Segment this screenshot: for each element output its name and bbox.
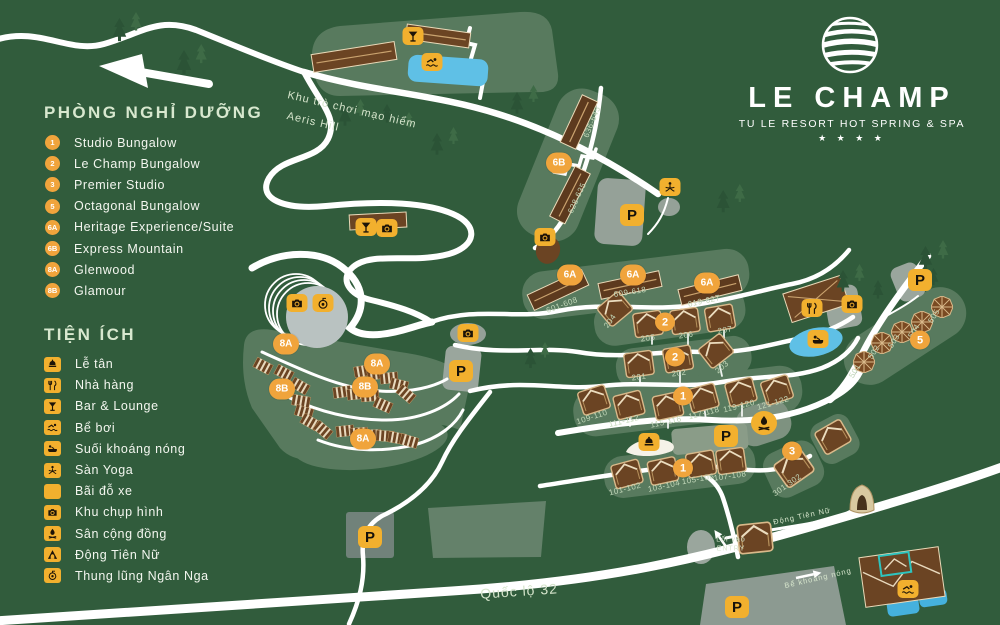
room-marker-8B[interactable]: 8B	[352, 377, 378, 398]
room-badge: 6A	[45, 220, 60, 235]
room-marker-6A[interactable]: 6A	[694, 273, 720, 294]
community-icon	[756, 415, 772, 431]
reception-icon	[44, 357, 61, 372]
rooms-legend-list: 1Studio Bungalow2Le Champ Bungalow3Premi…	[42, 132, 292, 302]
parking-marker[interactable]: P	[908, 269, 932, 291]
legend-facility-1: Nhà hàng	[42, 375, 292, 396]
facility-label: Suối khoáng nóng	[75, 442, 185, 456]
photo-icon	[44, 505, 61, 520]
legend-room-8B: 8BGlamour	[42, 280, 292, 301]
legend-panel: PHÒNG NGHỈ DƯỠNG 1Studio Bungalow2Le Cha…	[42, 103, 292, 587]
cave-icon	[44, 547, 61, 562]
legend-room-6B: 6BExpress Mountain	[42, 238, 292, 259]
room-label: Glamour	[74, 284, 126, 298]
legend-facility-10: Thung lũng Ngân Nga	[42, 565, 292, 586]
legend-room-2: 2Le Champ Bungalow	[42, 153, 292, 174]
parking-marker[interactable]: P	[620, 204, 644, 226]
room-marker-6A[interactable]: 6A	[557, 265, 583, 286]
community-marker[interactable]	[751, 411, 777, 435]
room-badge: 3	[45, 177, 60, 192]
community-icon	[47, 528, 58, 539]
photo-marker[interactable]	[535, 228, 556, 246]
parking-marker[interactable]: P	[358, 526, 382, 548]
facility-label: Bể bơi	[75, 421, 115, 435]
valley-icon	[317, 297, 330, 310]
facility-label: Sân cộng đồng	[75, 527, 167, 541]
photo-icon	[381, 222, 394, 235]
room-marker-2[interactable]: 2	[665, 348, 685, 367]
hot-spring-marker[interactable]	[808, 330, 829, 348]
restaurant-icon	[806, 302, 819, 315]
room-label: Octagonal Bungalow	[74, 199, 200, 213]
room-marker-8A[interactable]: 8A	[350, 429, 376, 450]
room-badge: 8A	[45, 262, 60, 277]
restaurant-icon	[47, 380, 58, 391]
bar-icon	[360, 221, 373, 234]
legend-facility-3: Bể bơi	[42, 417, 292, 438]
facility-label: Bãi đỗ xe	[75, 484, 133, 498]
room-marker-8A[interactable]: 8A	[273, 334, 299, 355]
room-label: Heritage Experience/Suite	[74, 220, 234, 234]
room-badge: 8B	[45, 283, 60, 298]
restaurant-icon	[44, 378, 61, 393]
facility-label: Bar & Lounge	[75, 399, 159, 413]
room-marker-8A[interactable]: 8A	[364, 354, 390, 375]
bar-marker[interactable]	[356, 218, 377, 236]
legend-facility-8: Sân cộng đồng	[42, 523, 292, 544]
photo-icon	[539, 231, 552, 244]
room-marker-6B[interactable]: 6B	[546, 153, 572, 174]
bar-icon	[407, 30, 420, 43]
legend-facility-0: Lễ tân	[42, 354, 292, 375]
legend-facility-9: Động Tiên Nữ	[42, 544, 292, 565]
room-badge: 5	[45, 199, 60, 214]
legend-room-5: 5Octagonal Bungalow	[42, 196, 292, 217]
legend-room-3: 3Premier Studio	[42, 174, 292, 195]
pool-marker[interactable]	[898, 580, 919, 598]
hot-spring-icon	[44, 441, 61, 456]
valley-icon	[47, 570, 58, 581]
pool-icon	[426, 56, 439, 69]
fairy-cave	[850, 485, 874, 513]
room-marker-2[interactable]: 2	[655, 313, 675, 332]
room-label: Glenwood	[74, 263, 135, 277]
photo-marker[interactable]	[842, 295, 863, 313]
restaurant-marker[interactable]	[802, 299, 823, 317]
pool-icon	[47, 422, 58, 433]
room-badge: 6B	[45, 241, 60, 256]
reception-icon	[643, 436, 656, 449]
photo-marker[interactable]	[287, 294, 308, 312]
room-marker-3[interactable]: 3	[782, 442, 802, 461]
logo-stars: ★ ★ ★ ★	[739, 133, 965, 144]
pool-icon	[902, 583, 915, 596]
room-marker-1[interactable]: 1	[673, 387, 693, 406]
photo-marker[interactable]	[458, 324, 479, 342]
logo-title: LE CHAMP	[739, 82, 965, 115]
bar-marker[interactable]	[403, 27, 424, 45]
resort-map: PHÒNG NGHỈ DƯỠNG 1Studio Bungalow2Le Cha…	[0, 0, 1000, 625]
parking-icon	[47, 486, 58, 497]
photo-icon	[462, 327, 475, 340]
facilities-heading: TIỆN ÍCH	[44, 325, 292, 345]
parking-marker[interactable]: P	[449, 360, 473, 382]
valley-marker[interactable]	[313, 294, 334, 312]
cave-icon	[47, 549, 58, 560]
room-badge: 1	[45, 135, 60, 150]
room-badge: 2	[45, 156, 60, 171]
room-marker-1[interactable]: 1	[673, 459, 693, 478]
logo-tagline: TU LE RESORT HOT SPRING & SPA	[739, 118, 965, 130]
resort-logo: LE CHAMP TU LE RESORT HOT SPRING & SPA ★…	[739, 10, 965, 144]
yoga-marker[interactable]	[660, 178, 681, 196]
room-label: Premier Studio	[74, 178, 165, 192]
room-marker-6A[interactable]: 6A	[620, 265, 646, 286]
legend-room-8A: 8AGlenwood	[42, 259, 292, 280]
facility-label: Thung lũng Ngân Nga	[75, 569, 209, 583]
facility-label: Nhà hàng	[75, 378, 134, 392]
room-label: Le Champ Bungalow	[74, 157, 200, 171]
legend-facility-6: Bãi đỗ xe	[42, 481, 292, 502]
legend-room-1: 1Studio Bungalow	[42, 132, 292, 153]
facility-label: Khu chụp hình	[75, 505, 163, 519]
pool-icon	[44, 420, 61, 435]
pool-marker[interactable]	[422, 53, 443, 71]
reception-icon	[47, 359, 58, 370]
facility-label: Động Tiên Nữ	[75, 548, 160, 562]
hot-spring-icon	[812, 333, 825, 346]
parking-icon	[44, 484, 61, 499]
legend-facility-4: Suối khoáng nóng	[42, 438, 292, 459]
room-marker-5[interactable]: 5	[910, 331, 930, 350]
room-label: Studio Bungalow	[74, 136, 177, 150]
photo-marker[interactable]	[377, 219, 398, 237]
bar-icon	[47, 401, 58, 412]
photo-icon	[47, 507, 58, 518]
hot-spring-icon	[47, 443, 58, 454]
facilities-legend-list: Lễ tânNhà hàngBar & LoungeBể bơiSuối kho…	[42, 354, 292, 587]
photo-icon	[846, 298, 859, 311]
bar-icon	[44, 399, 61, 414]
facility-label: Lễ tân	[75, 357, 113, 371]
room-marker-8B[interactable]: 8B	[269, 379, 295, 400]
parking-marker[interactable]: P	[725, 596, 749, 618]
room-label: Express Mountain	[74, 242, 184, 256]
rooms-heading: PHÒNG NGHỈ DƯỠNG	[44, 103, 292, 123]
community-icon	[44, 526, 61, 541]
legend-room-6A: 6AHeritage Experience/Suite	[42, 217, 292, 238]
yoga-icon	[664, 181, 677, 194]
legend-facility-2: Bar & Lounge	[42, 396, 292, 417]
reception-marker[interactable]	[639, 433, 660, 451]
parking-marker[interactable]: P	[714, 425, 738, 447]
photo-icon	[291, 297, 304, 310]
facility-label: Sàn Yoga	[75, 463, 133, 477]
yoga-icon	[44, 463, 61, 478]
yoga-icon	[47, 465, 58, 476]
valley-icon	[44, 568, 61, 583]
legend-facility-5: Sàn Yoga	[42, 459, 292, 480]
legend-facility-7: Khu chụp hình	[42, 502, 292, 523]
